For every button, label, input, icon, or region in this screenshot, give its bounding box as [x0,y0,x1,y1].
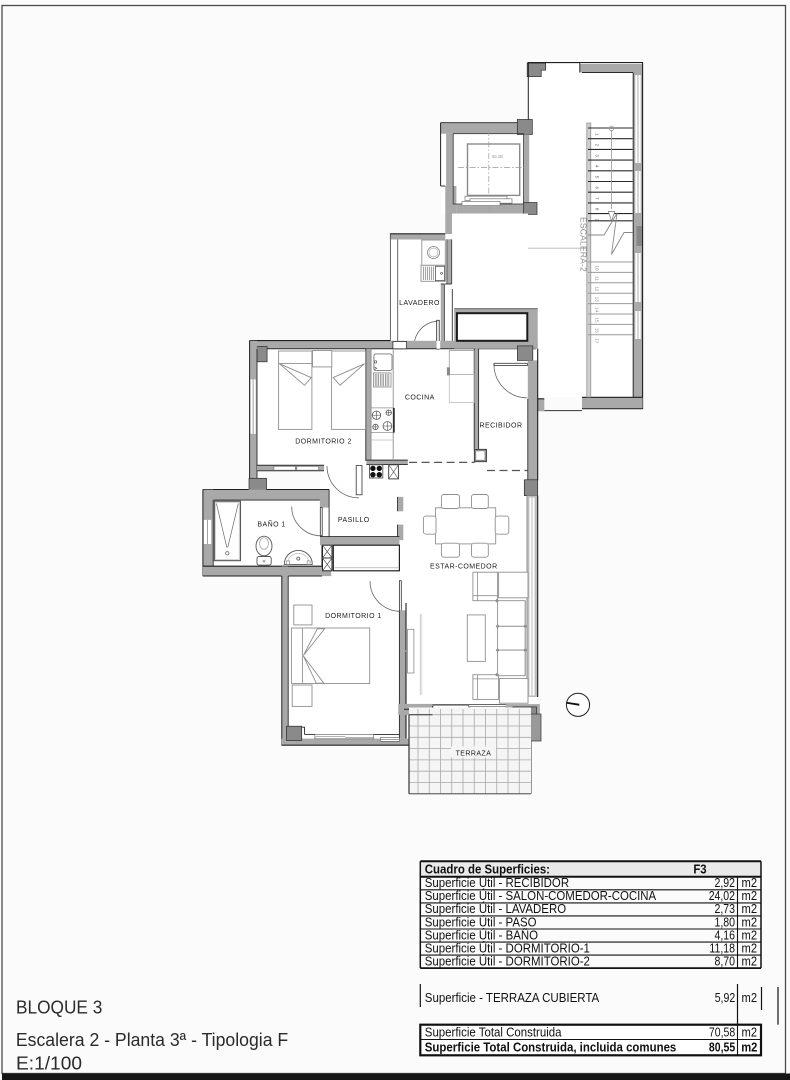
svg-text:m2: m2 [742,1024,758,1039]
svg-text:BAÑO 1: BAÑO 1 [257,519,285,528]
svg-text:Superficie Total Construida: Superficie Total Construida [425,1024,562,1039]
svg-text:10: 10 [594,265,599,271]
svg-text:14: 14 [594,307,599,313]
svg-text:Superficie - TERRAZA CUBIERTA: Superficie - TERRAZA CUBIERTA [425,990,600,1005]
svg-text:m2: m2 [742,953,758,968]
svg-text:ESCALERA-2: ESCALERA-2 [579,217,589,272]
svg-text:DORMITORIO 1: DORMITORIO 1 [325,613,382,620]
svg-text:m2: m2 [742,990,758,1005]
svg-text:DORMITORIO 2: DORMITORIO 2 [295,438,352,445]
svg-text:TERRAZA: TERRAZA [456,751,492,758]
svg-text:Escalera 2 - Planta 3ª - Tipol: Escalera 2 - Planta 3ª - Tipologia F [16,1029,288,1050]
svg-text:80,55: 80,55 [709,1040,735,1055]
svg-text:E:1/100: E:1/100 [16,1052,82,1073]
svg-text:Superficie Total Construida, i: Superficie Total Construida, incluida co… [425,1040,677,1055]
svg-text:RECIBIDOR: RECIBIDOR [480,423,523,430]
svg-text:m2: m2 [741,1040,757,1055]
svg-text:PASILLO: PASILLO [338,517,370,524]
svg-text:15: 15 [594,317,599,323]
svg-text:Superficie Útil - DORMITORIO-2: Superficie Útil - DORMITORIO-2 [425,953,590,968]
svg-text:17: 17 [594,338,599,344]
svg-text:12: 12 [594,286,599,292]
svg-text:16: 16 [594,328,599,334]
svg-text:ESTAR-COMEDOR: ESTAR-COMEDOR [430,564,498,571]
svg-text:F3: F3 [693,862,706,877]
svg-text:5,92: 5,92 [715,990,736,1005]
svg-text:BLOQUE 3: BLOQUE 3 [16,996,102,1017]
svg-text:COCINA: COCINA [405,394,435,401]
svg-text:8,70: 8,70 [715,953,736,968]
svg-text:70,58: 70,58 [709,1024,735,1039]
svg-text:68.2B: 68.2B [492,154,503,159]
svg-text:LAVADERO: LAVADERO [399,300,440,307]
svg-text:13: 13 [594,297,599,303]
svg-text:11: 11 [594,276,599,281]
